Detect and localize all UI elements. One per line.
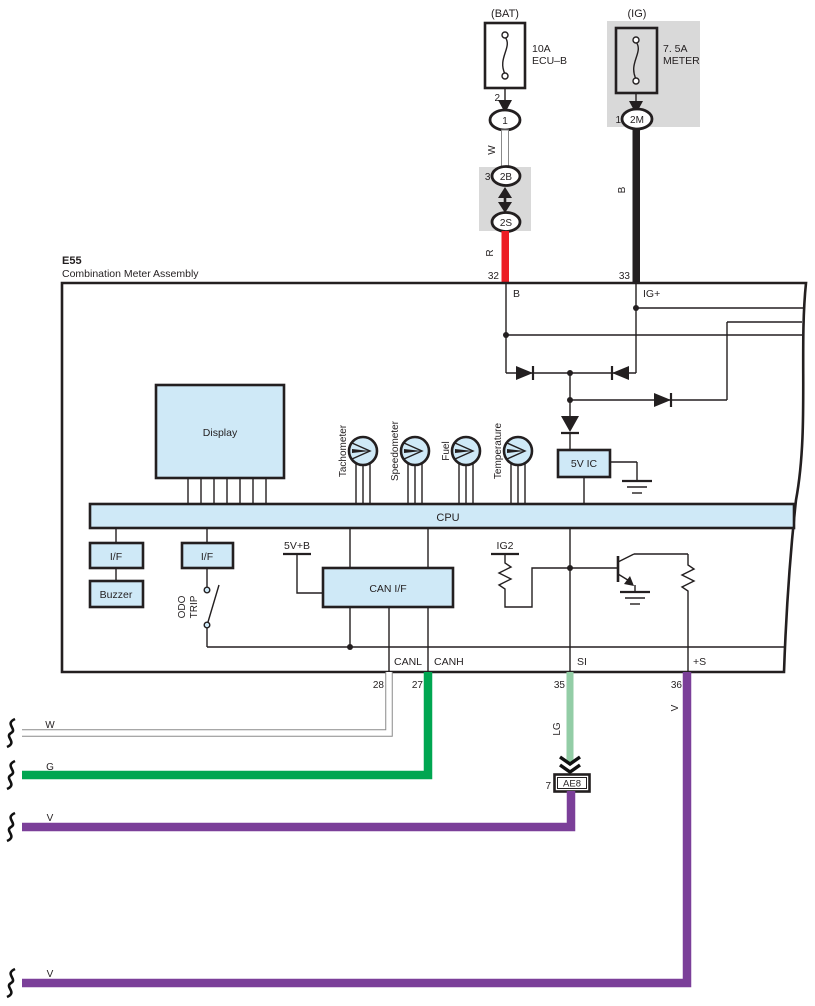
transistor-icon [618,554,634,586]
switch-contact-top [204,587,210,593]
pin-27-number: 27 [412,680,424,691]
ground-icon [620,592,650,604]
temperature-gauge: Temperature [493,422,532,504]
bat-fuse-element [503,37,508,74]
bat-fuse-terminal-bottom [502,73,508,79]
tachometer-label: Tachometer [338,424,349,477]
diode-right-icon [516,366,533,380]
switch-contact-bottom [204,622,210,628]
wire-w-bottom [22,672,389,733]
diode-down-icon [561,416,579,432]
bat-connector-label: 1 [502,116,508,127]
diode-left-icon [612,366,629,380]
wire-v-36-label: V [670,704,681,711]
wire-lg-label: LG [552,722,563,736]
wire-v-label: V [47,813,54,824]
5vb-rail-label: 5V+B [284,540,310,552]
if2-label: I/F [201,551,213,563]
pin-28-number: 28 [373,680,385,691]
5vb-rail-line [297,554,323,593]
wire-b [633,129,641,284]
ig2-label: IG2 [497,540,514,552]
if1-label: I/F [110,551,122,563]
bat-rating-label: 10A [532,43,551,55]
ig-fuse-background [607,21,700,127]
pin-33-name: IG+ [643,288,660,300]
connector-2s-label: 2S [500,218,513,229]
can-if-label: CAN I/F [369,583,406,595]
wire-b-label: B [617,186,628,193]
ig-source-label: (IG) [628,8,647,20]
pin-27-name: CANH [434,656,464,668]
buzzer-label: Buzzer [100,589,133,601]
ig2-resistor [499,554,570,607]
pin-35-number: 35 [554,680,566,691]
pin-32-number: 32 [488,271,500,282]
wiring-diagram-page: (BAT) 10A ECU–B 2 1 W 30 2B 2 2S R 32 (I… [0,0,815,1006]
bat-fuse-name-label: ECU–B [532,55,567,67]
bat-fuse-terminal-top [502,32,508,38]
ground-icon [622,481,652,493]
fuel-gauge: Fuel [441,437,480,504]
ig-pin-number: 1 [615,115,621,126]
ae8-connector-label: AE8 [563,779,581,790]
s-plus-resistor [682,554,694,672]
wire-g [22,672,428,775]
cpu-label: CPU [436,512,459,524]
wiring-diagram: (BAT) 10A ECU–B 2 1 W 30 2B 2 2S R 32 (I… [0,0,815,1006]
temperature-label: Temperature [493,422,504,479]
connector-2b-label: 2B [500,172,513,183]
pin-36-name: +S [693,656,706,668]
ig-fuse-name-label: METER [663,55,700,67]
5v-ic-label: 5V IC [571,458,598,470]
wire-v-ae8 [22,791,571,827]
ae8-pin-number: 7 [545,781,551,792]
speedometer-gauge: Speedometer [390,420,429,504]
wire-w-bottom-label: W [45,720,55,731]
bat-source-label: (BAT) [491,8,519,20]
wire-w-top [502,130,509,168]
wire-r-label: R [485,249,496,256]
pin-28-name: CANL [394,656,422,668]
speedometer-label: Speedometer [390,420,401,481]
connector-2m-label: 2M [630,115,644,126]
diode-right-icon [654,393,671,407]
pin-33-number: 33 [619,271,631,282]
assembly-code: E55 [62,255,82,267]
wire-g-label: G [46,762,54,773]
emitter-arrow-icon [624,576,634,586]
assembly-name: Combination Meter Assembly [62,268,199,280]
wire-r [502,231,510,284]
wire-break-squiggle-icon [7,719,15,997]
ig-rating-label: 7. 5A [663,43,688,55]
fuel-label: Fuel [441,441,452,460]
wire-v-bottom-label: V [47,969,54,980]
tachometer-gauge: Tachometer [338,424,377,504]
pin-35-name: SI [577,656,587,668]
ig-fuse-terminal-bottom [633,78,639,84]
trip-label: TRIP [189,595,200,618]
pin-36-number: 36 [671,680,683,691]
odo-label: ODO [177,595,188,618]
ig-fuse-terminal-top [633,37,639,43]
wire-w-top-label: W [487,145,498,155]
display-label: Display [203,427,238,439]
display-pins [188,478,266,504]
pin-32-name: B [513,288,520,300]
wire-w-bottom-outline [22,672,389,733]
